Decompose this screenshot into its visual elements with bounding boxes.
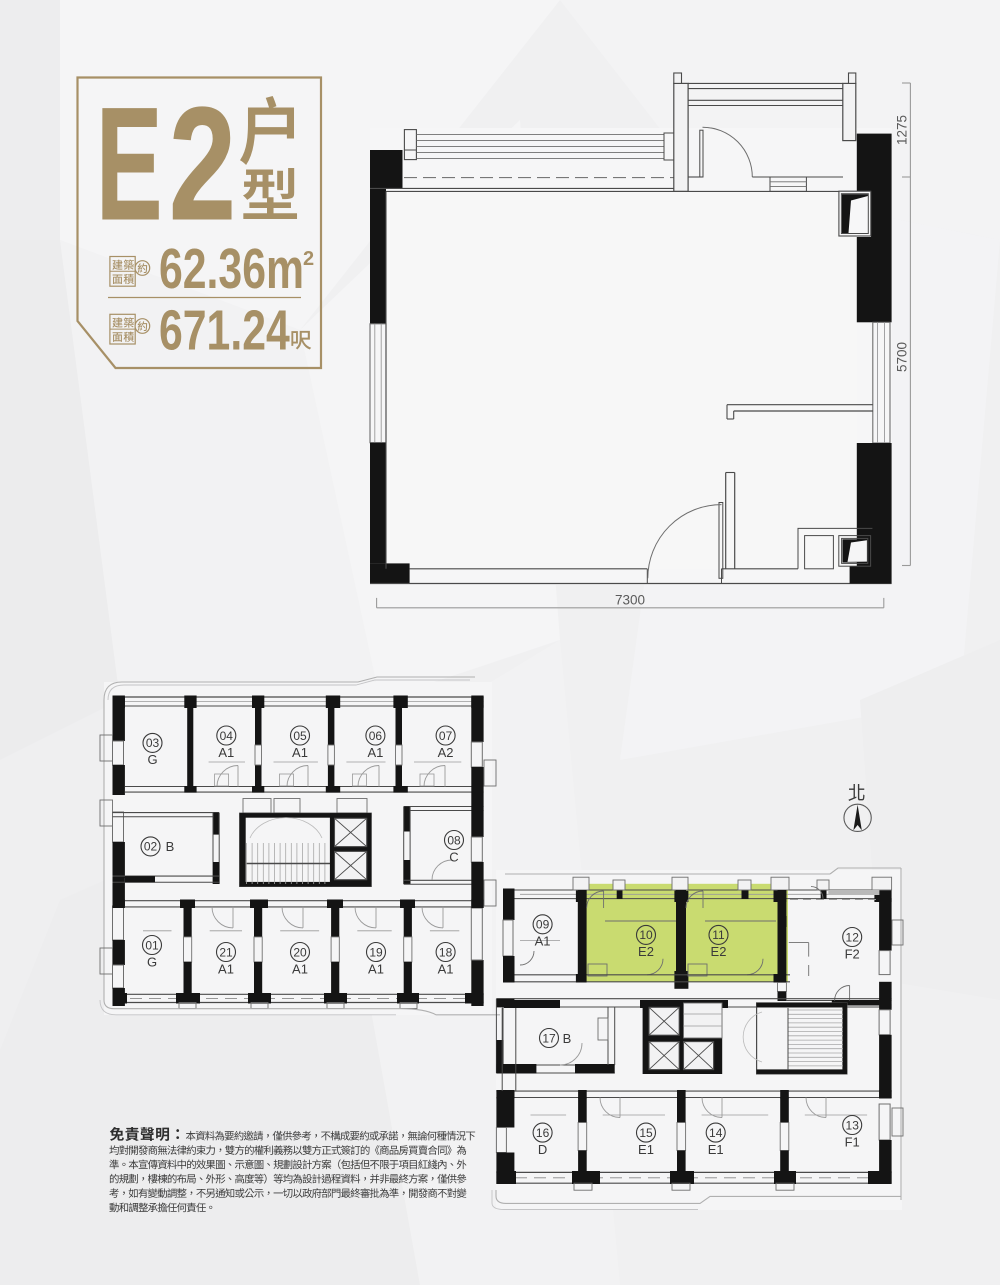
svg-text:02: 02: [144, 840, 158, 854]
svg-text:14: 14: [709, 1126, 723, 1140]
svg-text:13: 13: [846, 1118, 860, 1132]
svg-text:671.24: 671.24: [159, 297, 290, 361]
svg-text:A1: A1: [367, 745, 383, 760]
svg-text:E1: E1: [638, 1142, 654, 1157]
svg-text:G: G: [147, 752, 157, 767]
svg-text:A1: A1: [292, 961, 308, 976]
svg-text:7300: 7300: [615, 593, 645, 608]
svg-text:A1: A1: [218, 745, 234, 760]
svg-text:D: D: [538, 1142, 547, 1157]
svg-text:21: 21: [219, 945, 233, 959]
svg-text:19: 19: [369, 945, 383, 959]
svg-text:E1: E1: [708, 1142, 724, 1157]
svg-text:A1: A1: [438, 961, 454, 976]
svg-text:E: E: [96, 75, 162, 254]
svg-text:03: 03: [146, 736, 160, 750]
svg-text:12: 12: [846, 930, 860, 944]
svg-text:16: 16: [536, 1126, 550, 1140]
svg-text:E2: E2: [711, 944, 727, 959]
svg-text:20: 20: [293, 945, 307, 959]
svg-text:B: B: [166, 839, 175, 854]
svg-text:06: 06: [369, 729, 383, 743]
svg-text:A1: A1: [368, 961, 384, 976]
svg-text:10: 10: [639, 928, 653, 942]
svg-text:A1: A1: [218, 961, 234, 976]
svg-text:18: 18: [439, 945, 453, 959]
svg-text:07: 07: [439, 729, 453, 743]
svg-text:A1: A1: [535, 934, 551, 949]
svg-text:E2: E2: [638, 944, 654, 959]
svg-text:2: 2: [303, 248, 314, 270]
svg-text:05: 05: [293, 729, 307, 743]
svg-text:F2: F2: [845, 946, 860, 961]
svg-text:B: B: [563, 1031, 572, 1046]
svg-text:A1: A1: [292, 745, 308, 760]
svg-text:1275: 1275: [895, 115, 910, 145]
svg-text:08: 08: [447, 833, 461, 847]
svg-text:C: C: [449, 849, 458, 864]
svg-text:62.36m: 62.36m: [159, 236, 304, 300]
svg-text:5700: 5700: [895, 342, 910, 372]
svg-text:G: G: [147, 954, 157, 969]
svg-text:11: 11: [712, 928, 725, 942]
svg-text:17: 17: [542, 1031, 556, 1045]
svg-text:04: 04: [220, 729, 234, 743]
svg-text:15: 15: [639, 1126, 653, 1140]
svg-text:A2: A2: [438, 745, 454, 760]
svg-text:09: 09: [536, 918, 550, 932]
svg-text:2: 2: [169, 75, 236, 254]
svg-text:F1: F1: [845, 1134, 860, 1149]
svg-text:01: 01: [145, 938, 159, 952]
